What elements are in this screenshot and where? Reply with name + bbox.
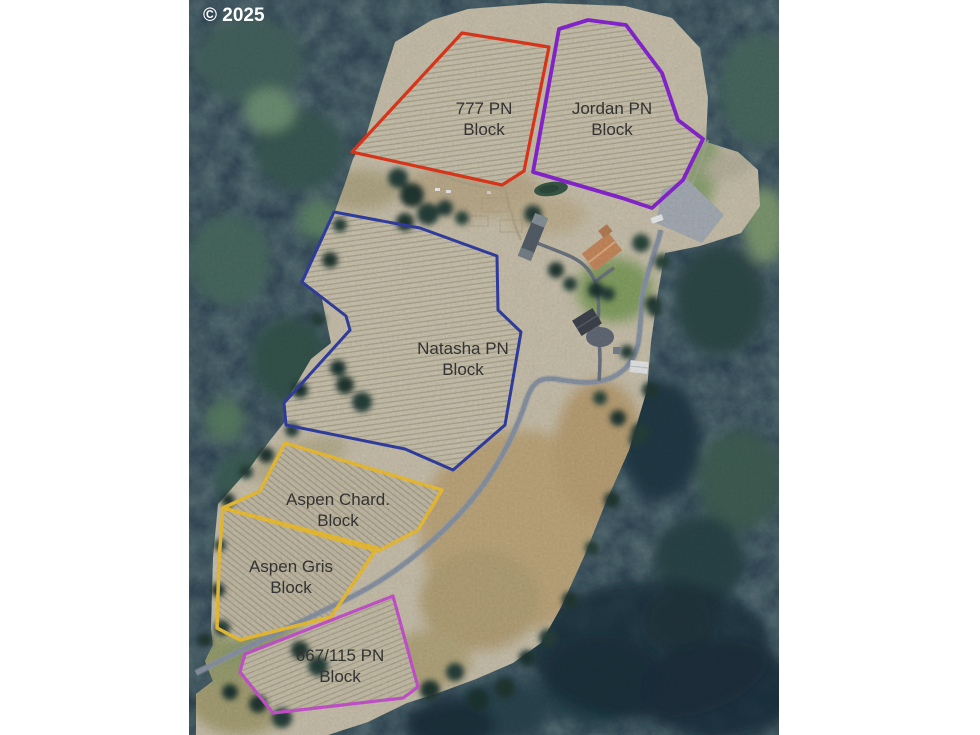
block-label-777-pn-line2: Block: [463, 120, 505, 139]
aerial-property-photo: 777 PN Block Jordan PN Block Natasha PN …: [0, 0, 980, 735]
block-label-aspen-gris-line2: Block: [270, 578, 312, 597]
block-label-natasha-pn-line2: Block: [442, 360, 484, 379]
block-label-natasha-pn-line1: Natasha PN: [417, 339, 509, 358]
block-label-aspen-chard-line2: Block: [317, 511, 359, 530]
aerial-imagery: 777 PN Block Jordan PN Block Natasha PN …: [185, 0, 800, 735]
block-label-777-pn-line1: 777 PN: [456, 99, 513, 118]
aerial-map: 777 PN Block Jordan PN Block Natasha PN …: [0, 0, 980, 735]
copyright-text: © 2025: [203, 5, 265, 26]
block-label-667-115-pn-line1: 667/115 PN: [296, 646, 385, 665]
block-label-667-115-pn-line2: Block: [319, 667, 361, 686]
block-label-jordan-pn-line2: Block: [591, 120, 633, 139]
block-label-aspen-chard-line1: Aspen Chard.: [286, 490, 390, 509]
block-label-aspen-gris-line1: Aspen Gris: [249, 557, 333, 576]
block-label-jordan-pn-line1: Jordan PN: [572, 99, 652, 118]
